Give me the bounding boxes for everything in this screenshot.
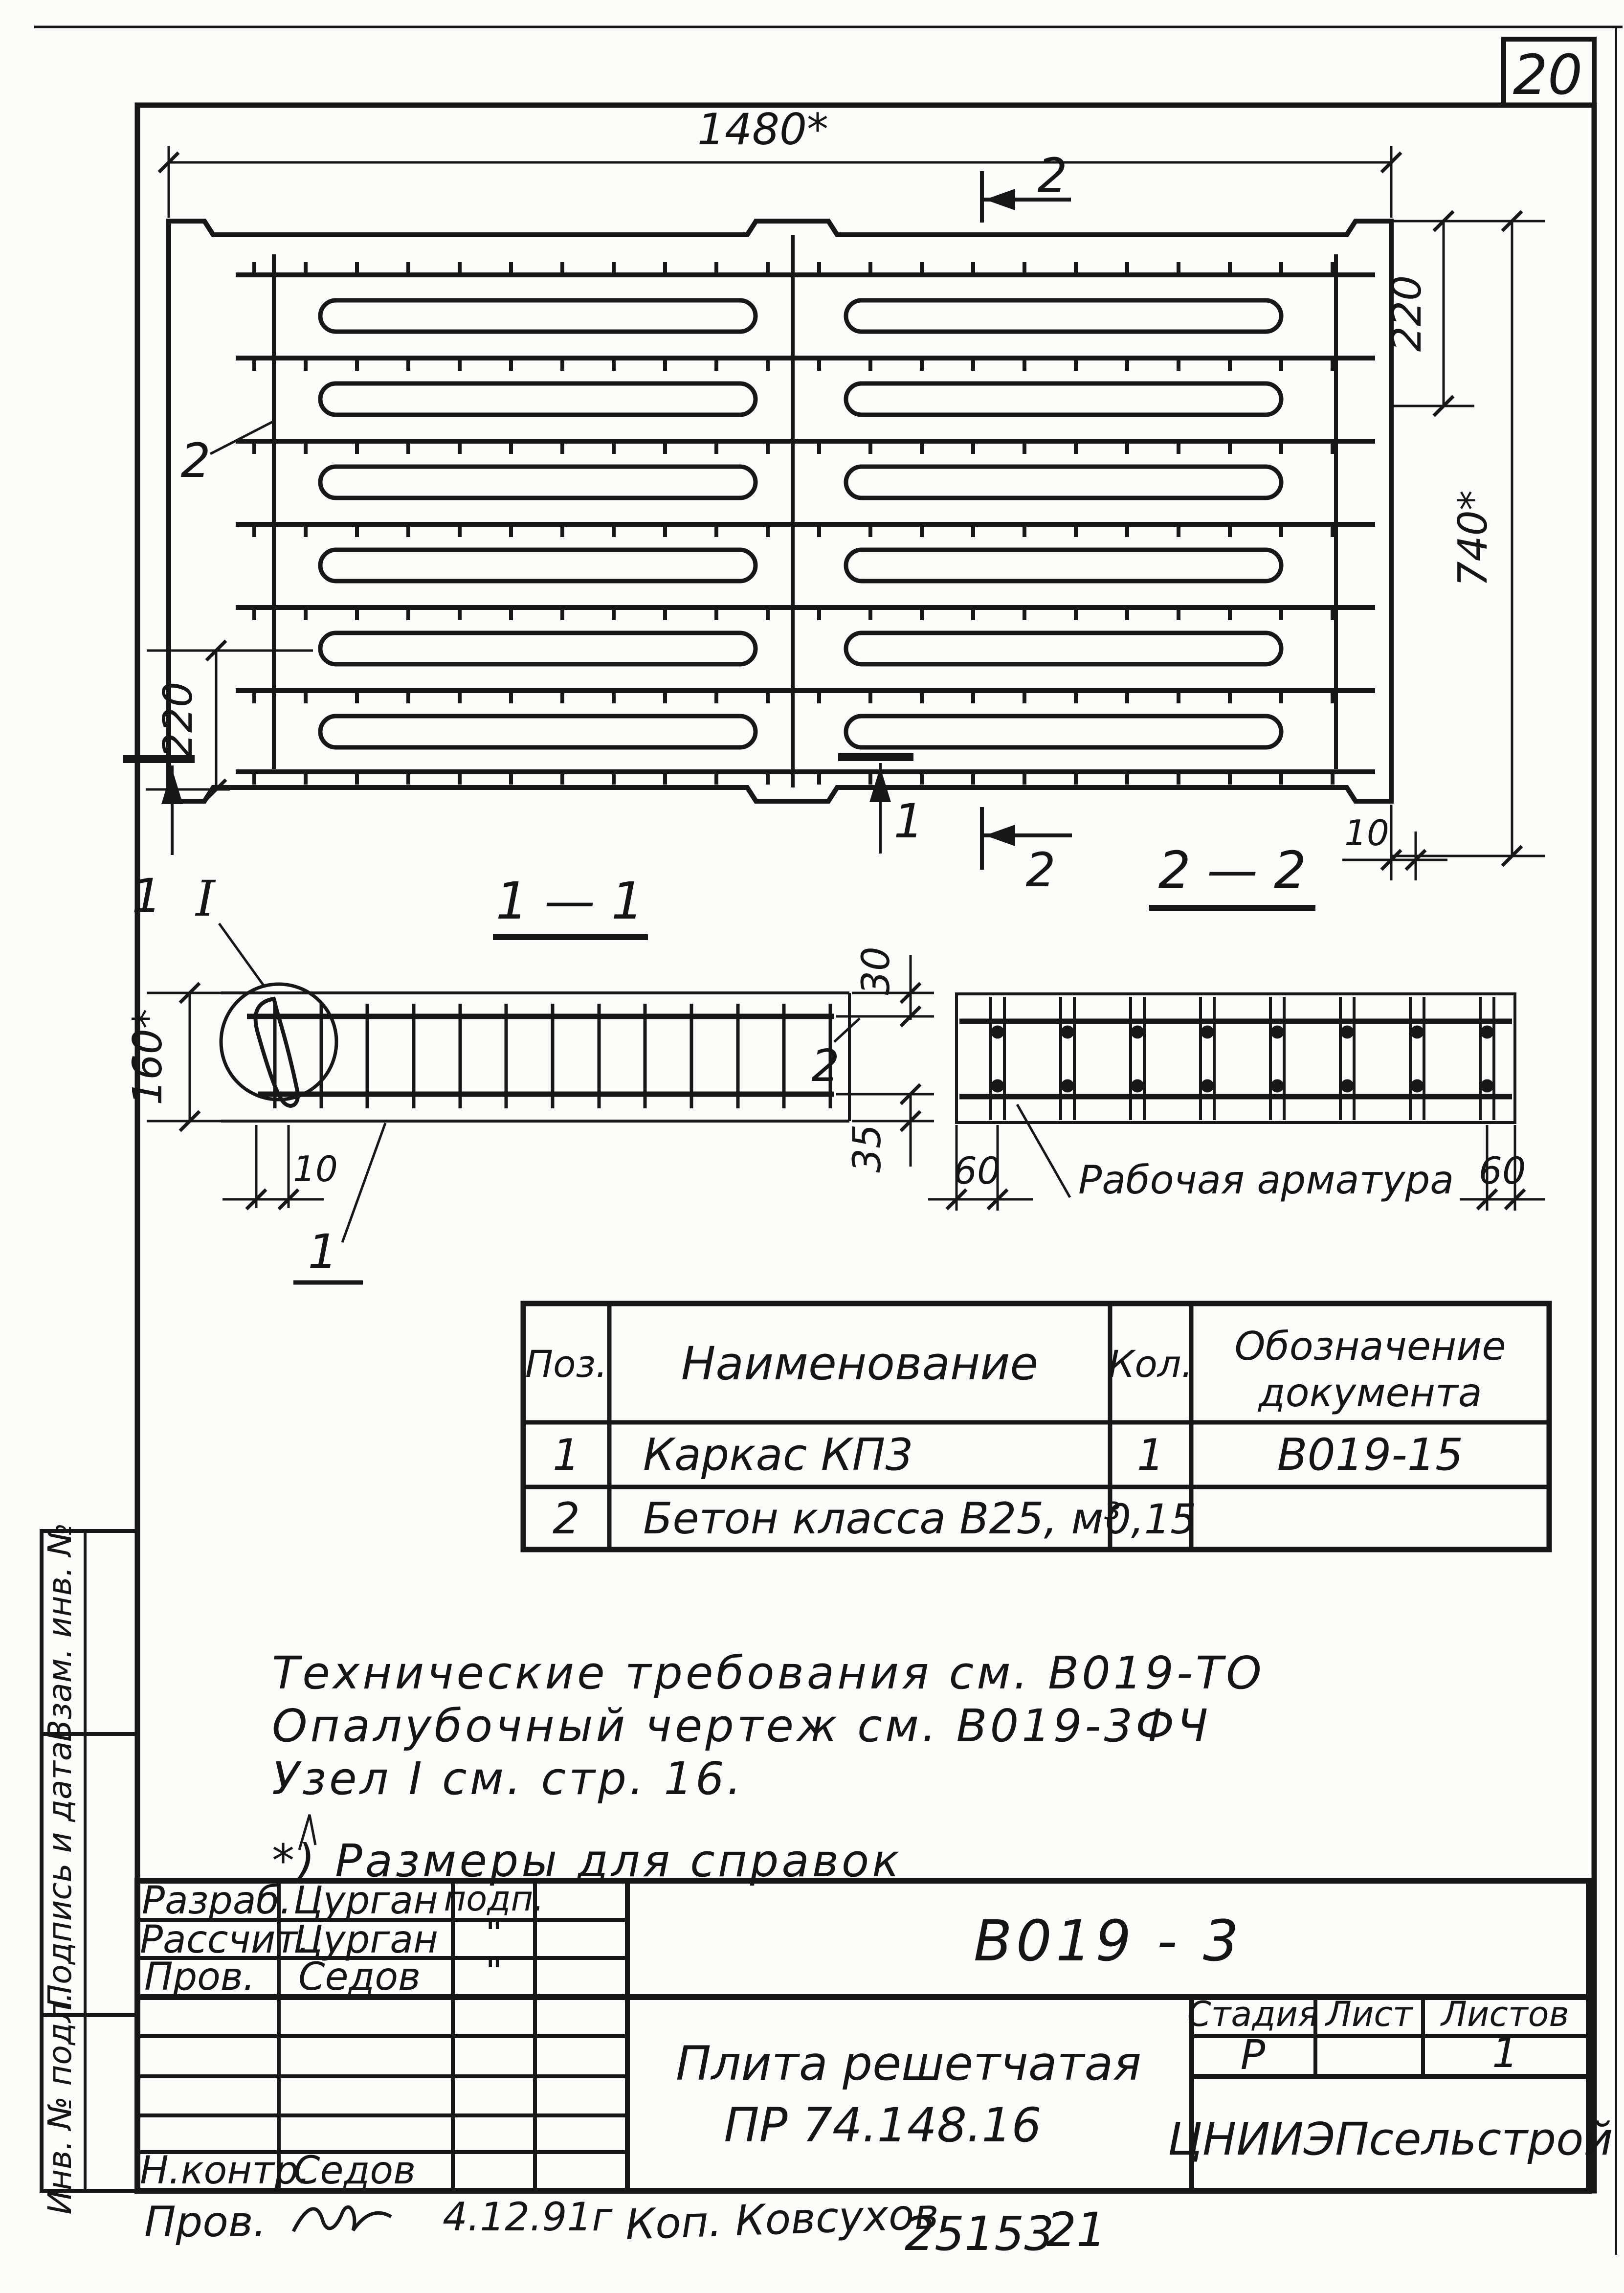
cut-1-left-label: 1 <box>132 869 161 923</box>
drawing-title-2: ПР 74.148.16 <box>724 2098 1041 2153</box>
spec-r1-doc: В019-15 <box>1277 1429 1464 1481</box>
note-line-1: Технические требования см. В019-ТО <box>272 1647 1265 1699</box>
organization: ЦНИИЭПсельстрой <box>1168 2113 1613 2165</box>
sheets-value: 1 <box>1492 2029 1518 2077</box>
reinforcement-bars <box>236 262 1375 785</box>
weld-dot <box>1061 1026 1074 1038</box>
spec-r2-pos: 2 <box>553 1493 580 1544</box>
weld-dot <box>991 1026 1004 1038</box>
sheet-header: Лист <box>1324 1994 1414 2034</box>
dim-10-hook: 10 <box>222 1125 338 1208</box>
weld-dot <box>1481 1026 1493 1038</box>
weld-dot <box>1271 1079 1284 1092</box>
dim-740-label: 740* <box>1450 490 1496 587</box>
weld-dot <box>1271 1026 1284 1038</box>
stage-value: Р <box>1241 2031 1266 2079</box>
mesh-outline <box>957 994 1515 1123</box>
note-line-2: Опалубочный чертеж см. В019-3ФЧ <box>272 1700 1211 1752</box>
strip-label-2: Подпись и дата <box>41 1741 79 2009</box>
weld-dot <box>1201 1079 1214 1092</box>
leader-concrete-plan: 2 <box>180 421 275 488</box>
spec-r1-pos: 1 <box>553 1430 580 1480</box>
rebar-label: Рабочая арматура <box>1078 1157 1454 1203</box>
section-1-1-title: 1 — 1 <box>496 871 644 931</box>
weld-dot <box>1061 1079 1074 1092</box>
strip-label-1: Взам. инв. № <box>41 1523 79 1742</box>
side-strip: Взам. инв. № Подпись и дата Инв. № подл. <box>41 1523 137 2215</box>
dim-160: 160* <box>125 993 225 1121</box>
node-label: I <box>195 870 216 927</box>
weld-dot <box>1131 1026 1144 1038</box>
weld-dot <box>1201 1026 1214 1038</box>
dim-35-label: 35 <box>845 1124 890 1172</box>
tb-ditto-2: " <box>485 1950 503 1994</box>
spec-r1-name: Каркас КП3 <box>643 1429 913 1481</box>
title-block: Разраб. Цурган подп. Рассчит. Цурган " П… <box>137 1879 1613 2193</box>
cut-2-bottom-label: 2 <box>1025 843 1055 898</box>
page-number: 20 <box>1513 44 1583 107</box>
plate-slot <box>846 383 1281 415</box>
rebar-callout: Рабочая арматура <box>1017 1104 1454 1203</box>
dim-220-right: 220 <box>1384 221 1545 406</box>
dim-60-right: 60 <box>1460 1125 1545 1211</box>
spec-r2-name: Бетон класса В25, м³ <box>643 1493 1121 1544</box>
plate-slot <box>320 300 756 332</box>
tb-name-4: Седов <box>293 2149 416 2193</box>
weld-dot <box>1481 1079 1493 1092</box>
plate-slot <box>846 467 1281 498</box>
cut-2-top: 2 <box>982 148 1071 223</box>
tech-notes: Технические требования см. В019-ТО Опалу… <box>272 1647 1265 1887</box>
tb-name-3: Седов <box>298 1955 421 1999</box>
spec-col-doc2: документа <box>1257 1370 1482 1416</box>
spec-col-name: Наименование <box>681 1337 1038 1391</box>
node-circle <box>221 984 336 1100</box>
dim-60-left-label: 60 <box>954 1149 1001 1192</box>
leader-concrete-label: 2 <box>180 433 210 488</box>
cut-1-mid-label: 1 <box>893 794 923 849</box>
dim-1480-label: 1480* <box>697 104 828 155</box>
dimension-ticks <box>159 153 1525 1209</box>
cut-1-left: 1 <box>123 759 195 923</box>
dim-30-label: 30 <box>854 946 898 995</box>
drawing-title-1: Плита решетчатая <box>676 2036 1141 2091</box>
plate-slot <box>846 300 1281 332</box>
leader-frame-label: 1 <box>308 1224 337 1279</box>
plate-slot <box>320 716 756 747</box>
cut-2-bottom: 2 <box>982 807 1072 898</box>
weld-dot <box>1411 1079 1424 1092</box>
weld-dot <box>1411 1026 1424 1038</box>
footer-notes: Пров. 4.12.91г Коп. Ковсухов 25153 21 <box>144 2190 1106 2261</box>
section-1-1: 1 — 1 I 160* 10 1 <box>125 870 934 1282</box>
dim-10-hook-label: 10 <box>293 1148 338 1190</box>
spec-row-2: 2 Бетон класса В25, м³ 0,15 <box>553 1493 1197 1544</box>
plan-view: 1480* 2 220 740* 10 <box>123 104 1545 923</box>
footer-num: 25153 <box>905 2206 1054 2261</box>
dim-tick-marks <box>159 153 1525 1209</box>
dim-1480: 1480* <box>169 104 1391 218</box>
dim-60-left: 60 <box>928 1125 1033 1211</box>
tb-ditto-1: " <box>485 1912 503 1956</box>
page-number-box: 20 <box>1504 39 1594 107</box>
footer-date: 4.12.91г <box>443 2194 613 2240</box>
spec-row-1: 1 Каркас КП3 1 В019-15 <box>553 1429 1463 1481</box>
weld-dot <box>1341 1079 1354 1092</box>
plate-slot <box>320 383 756 415</box>
strip-label-3: Инв. № подл. <box>41 1992 79 2214</box>
plate-slot <box>320 550 756 581</box>
dim-60-right-label: 60 <box>1479 1149 1526 1192</box>
dim-220-left-label: 220 <box>155 682 201 759</box>
dim-10-plan: 10 <box>1342 805 1447 880</box>
cut-2-top-arrow <box>985 189 1015 210</box>
spec-col-pos: Поз. <box>525 1342 607 1386</box>
dim-10-plan-label: 10 <box>1344 812 1389 854</box>
leader-concrete-11: 2 <box>811 1018 860 1092</box>
tb-role-4: Н.контр. <box>140 2149 311 2193</box>
leader-concrete-11-label: 2 <box>811 1040 839 1092</box>
spec-r2-qty: 0,15 <box>1105 1495 1196 1543</box>
footer-page: 21 <box>1046 2203 1106 2257</box>
plate-slot <box>320 633 756 664</box>
mesh-ties <box>991 997 1494 1120</box>
leader-frame: 1 <box>293 1123 385 1282</box>
section-2-2: 2 — 2 60 60 Рабочая арматура <box>928 840 1545 1211</box>
stage-header: Стадия <box>1187 1994 1319 2034</box>
doc-number: В019 - 3 <box>974 1909 1243 1974</box>
plate-slot <box>846 633 1281 664</box>
weld-dot <box>1131 1079 1144 1092</box>
plate-slot <box>846 550 1281 581</box>
plate-slot <box>320 467 756 498</box>
sheets-header: Листов <box>1440 1994 1569 2034</box>
spec-col-doc1: Обозначение <box>1234 1324 1506 1369</box>
cut-2-bottom-arrow <box>985 825 1015 846</box>
cut-1-left-arrow <box>161 769 183 804</box>
tb-role-3: Пров. <box>144 1955 255 1999</box>
plate-slot <box>846 716 1281 747</box>
spec-table: Поз. Наименование Кол. Обозначение докум… <box>523 1304 1549 1550</box>
footer-copy: Коп. Ковсухов <box>624 2190 939 2249</box>
blueprint-svg: 20 1480* 2 220 <box>0 0 1624 2293</box>
node-callout: I <box>195 870 264 986</box>
spec-col-qty: Кол. <box>1108 1342 1193 1386</box>
cut-2-top-label: 2 <box>1037 148 1067 203</box>
tb-role-1: Разраб. <box>142 1879 292 1923</box>
drawing-sheet: 20 1480* 2 220 <box>0 0 1624 2293</box>
dim-160-label: 160* <box>125 1009 171 1105</box>
spec-r1-qty: 1 <box>1137 1430 1164 1480</box>
section-2-2-title: 2 — 2 <box>1158 840 1306 900</box>
note-line-3: Узел I см. стр. 16. <box>272 1753 744 1805</box>
tb-name-1: Цурган <box>293 1879 438 1923</box>
weld-dot <box>1341 1026 1354 1038</box>
footer-prov: Пров. <box>144 2198 267 2247</box>
signature <box>293 2207 391 2231</box>
weld-dot <box>991 1079 1004 1092</box>
dim-220-right-label: 220 <box>1384 275 1430 352</box>
